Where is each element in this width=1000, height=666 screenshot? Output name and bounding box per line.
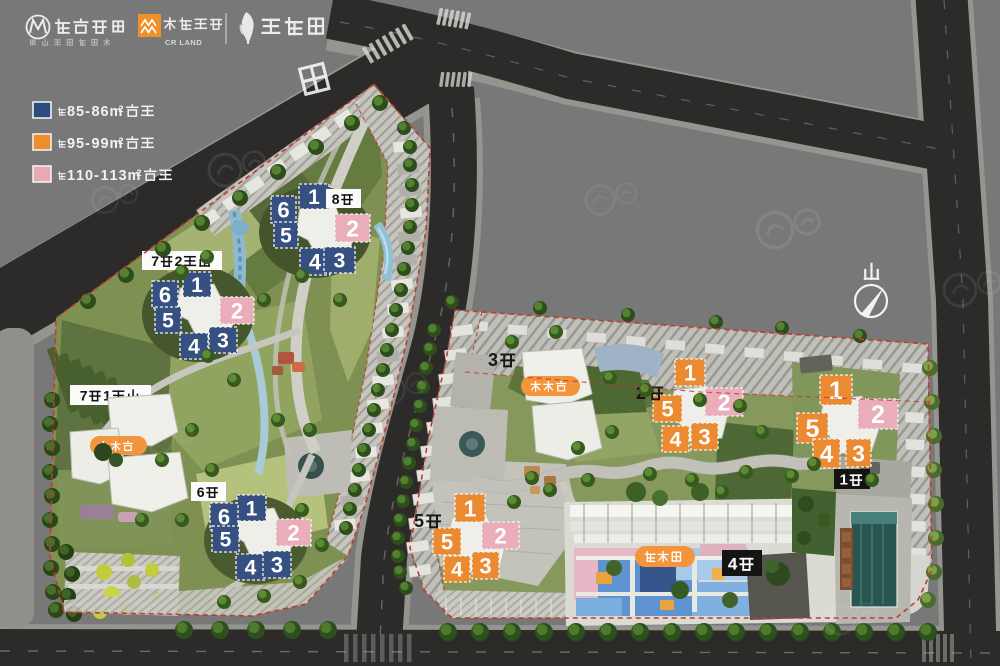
svg-text:-: - — [85, 104, 90, 120]
svg-text:6: 6 — [197, 484, 205, 500]
svg-text:4: 4 — [451, 559, 463, 582]
svg-text:3: 3 — [271, 552, 283, 577]
svg-text:3: 3 — [698, 424, 710, 449]
svg-text:2: 2 — [136, 168, 141, 178]
svg-text:1: 1 — [308, 186, 320, 209]
svg-text:-: - — [94, 168, 99, 184]
svg-text:5: 5 — [76, 136, 84, 152]
svg-text:1: 1 — [684, 360, 696, 385]
svg-text:CR LAND: CR LAND — [165, 38, 202, 47]
svg-text:5: 5 — [441, 529, 453, 554]
svg-text:3: 3 — [334, 250, 346, 273]
svg-text:8: 8 — [332, 191, 340, 207]
svg-text:3: 3 — [118, 168, 126, 184]
svg-text:5: 5 — [76, 104, 84, 120]
svg-text:5: 5 — [220, 529, 232, 552]
svg-text:5: 5 — [162, 310, 174, 333]
svg-text:1: 1 — [840, 472, 848, 489]
svg-text:1: 1 — [109, 168, 117, 184]
svg-text:7: 7 — [80, 387, 88, 403]
svg-text:3: 3 — [479, 553, 491, 578]
svg-text:4: 4 — [670, 429, 682, 452]
svg-text:1: 1 — [67, 168, 75, 184]
svg-text:4: 4 — [309, 249, 322, 274]
svg-text:-: - — [85, 136, 90, 152]
svg-text:4: 4 — [728, 554, 738, 573]
svg-text:9: 9 — [67, 136, 75, 152]
svg-text:3: 3 — [852, 440, 865, 466]
svg-text:2: 2 — [231, 298, 243, 323]
svg-text:2: 2 — [346, 215, 359, 241]
svg-text:2: 2 — [494, 523, 506, 548]
svg-text:2: 2 — [871, 401, 885, 429]
svg-text:4: 4 — [245, 557, 257, 580]
svg-text:1: 1 — [191, 274, 203, 297]
svg-text:1: 1 — [829, 377, 843, 405]
svg-text:1: 1 — [76, 168, 84, 184]
svg-text:0: 0 — [85, 168, 93, 184]
svg-text:2: 2 — [118, 104, 123, 114]
svg-text:4: 4 — [188, 336, 200, 359]
svg-text:8: 8 — [92, 104, 100, 120]
svg-text:6: 6 — [159, 282, 171, 307]
svg-text:4: 4 — [820, 441, 834, 468]
svg-text:3: 3 — [217, 330, 229, 353]
svg-text:9: 9 — [92, 136, 100, 152]
svg-text:9: 9 — [100, 136, 108, 152]
svg-text:5: 5 — [280, 225, 292, 248]
svg-text:6: 6 — [100, 104, 108, 120]
svg-text:6: 6 — [277, 197, 289, 222]
svg-text:2: 2 — [287, 520, 299, 545]
svg-text:2: 2 — [118, 136, 123, 146]
svg-text:1: 1 — [464, 495, 477, 521]
svg-text:5: 5 — [661, 396, 673, 421]
svg-text:1: 1 — [100, 168, 108, 184]
svg-text:3: 3 — [488, 350, 498, 370]
svg-text:8: 8 — [67, 104, 75, 120]
svg-text:1: 1 — [246, 498, 258, 521]
